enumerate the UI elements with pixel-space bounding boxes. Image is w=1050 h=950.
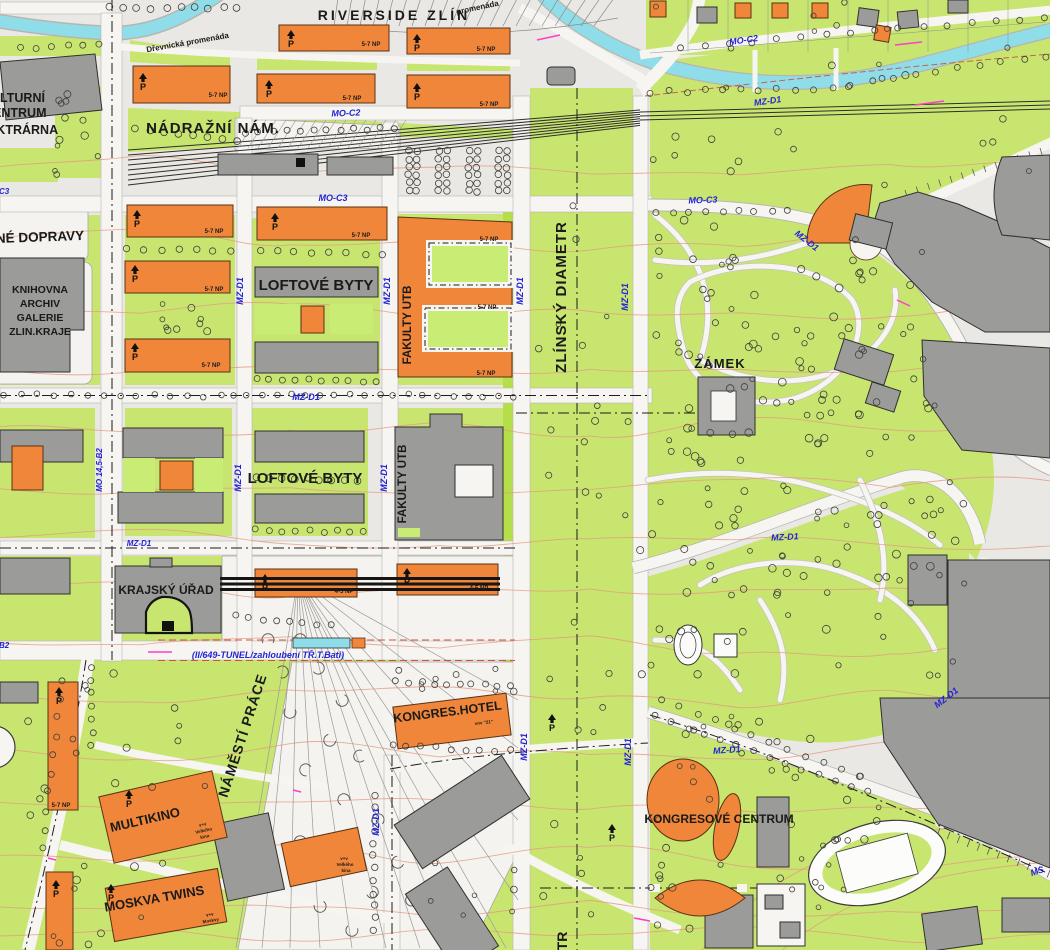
svg-text:P: P bbox=[140, 82, 146, 92]
label-np: 5-7 NP bbox=[477, 371, 496, 377]
park-fountain bbox=[674, 625, 702, 665]
label-knihovna: KNIHOVNA bbox=[12, 284, 68, 296]
label-zamek: ZÁMEK bbox=[694, 356, 745, 371]
label-road-b2-partial: B2 bbox=[0, 641, 10, 650]
building-kongres-gray bbox=[757, 797, 789, 867]
label-road-mz-d1: MZ-D1 bbox=[233, 464, 243, 492]
svg-text:P: P bbox=[414, 92, 420, 102]
building-loftove-1b bbox=[255, 342, 378, 373]
label-fakulty-utb-2: FAKULTY UTB bbox=[397, 445, 409, 524]
svg-text:P: P bbox=[609, 833, 615, 843]
label-archiv: ARCHIV bbox=[20, 298, 60, 310]
boulevard-west-lane bbox=[513, 96, 530, 950]
building-kongres-oval-1 bbox=[647, 759, 719, 841]
label-kino2-note: Velkého bbox=[336, 862, 353, 867]
svg-text:P: P bbox=[288, 39, 294, 49]
label-road-mz-d1: MZ-D1 bbox=[382, 277, 392, 305]
svg-text:P: P bbox=[108, 893, 114, 903]
zoning-map-canvas[interactable]: RIVERSIDE ZLÍNNÁDRAŽNÍ NÁM.KULTURNÍCENTR… bbox=[0, 0, 1050, 950]
building-loftove-2a bbox=[255, 431, 364, 462]
label-road-mz-d1: MZ-D1 bbox=[519, 733, 529, 761]
label-road-mz-d1: MZ-D1 bbox=[379, 464, 389, 492]
label-road-mz-d1: MZ-D1 bbox=[771, 531, 799, 542]
label-zlin-kraje: ZLIN.KRAJE bbox=[9, 326, 71, 338]
label-np: 5-7 NP bbox=[362, 42, 381, 48]
label-road-mz-d1: MZ-D1 bbox=[371, 808, 381, 836]
label-loftove-byty-1: LOFTOVÉ BYTY bbox=[259, 277, 374, 294]
label-np: 5-7 NP bbox=[205, 229, 224, 235]
label-kongresove-centrum: KONGRESOVÉ CENTRUM bbox=[644, 811, 793, 826]
svg-text:P: P bbox=[272, 222, 278, 232]
building-station-2 bbox=[327, 157, 393, 175]
label-road-c3-partial: C3 bbox=[0, 187, 10, 196]
label-road-mo-c2: MO-C2 bbox=[331, 107, 360, 118]
label-kino2-note: kina bbox=[341, 868, 351, 873]
label-nadrazni-nam: NÁDRAŽNÍ NÁM. bbox=[146, 119, 280, 137]
label-diametr-partial: TR bbox=[554, 932, 570, 950]
label-kino2-note: v+v bbox=[340, 856, 348, 861]
svg-text:P: P bbox=[266, 89, 272, 99]
label-road-mz-d1: MZ-D1 bbox=[623, 738, 633, 766]
label-dopravy: NÉ DOPRAVY bbox=[0, 228, 84, 246]
label-np: 5-7 NP bbox=[352, 233, 371, 239]
svg-text:P: P bbox=[134, 219, 140, 229]
label-elektrarna: ELEKTRÁRNA bbox=[0, 122, 58, 137]
label-galerie: GALERIE bbox=[17, 312, 64, 324]
svg-text:P: P bbox=[56, 696, 62, 706]
label-loftove-byty-2: LOFTOVÉ BYTY bbox=[248, 470, 363, 487]
label-fakulty-utb-1: FAKULTY UTB bbox=[402, 286, 414, 365]
label-road-mz-d1: MZ-D1 bbox=[713, 744, 741, 756]
label-np: 4-5 NP bbox=[335, 589, 354, 595]
label-np: 5-7 NP bbox=[205, 287, 224, 293]
label-np: 5-7 NP bbox=[202, 363, 221, 369]
tunnel-portal bbox=[293, 638, 350, 648]
svg-text:P: P bbox=[404, 577, 410, 587]
label-np: 5-7 NP bbox=[209, 93, 228, 99]
label-np: 5-7 NP bbox=[477, 47, 496, 53]
label-zlinsky-diametr: ZLÍNSKÝ DIAMETR bbox=[552, 221, 570, 373]
svg-text:P: P bbox=[53, 889, 59, 899]
label-centrum: CENTRUM bbox=[0, 106, 47, 120]
building-loftove-2b bbox=[255, 494, 364, 523]
label-np: 5-7 NP bbox=[478, 305, 497, 311]
label-road-mz-d1: MZ-D1 bbox=[620, 283, 630, 311]
label-road-mo-14-5-b2: MO 14,5-B2 bbox=[95, 448, 104, 492]
label-road-mz-d1: MZ-D1 bbox=[235, 277, 245, 305]
label-krajsky-urad: KRAJSKÝ ÚŘAD bbox=[118, 582, 214, 597]
label-kulturni: KULTURNÍ bbox=[0, 90, 45, 105]
label-road-mz-d1: MZ-D1 bbox=[515, 277, 525, 305]
label-road-mz-d1: MZ-D1 bbox=[292, 392, 320, 402]
label-road-mz-d1: MZ-D1 bbox=[127, 539, 152, 548]
svg-text:P: P bbox=[126, 799, 132, 809]
label-road-mo-c3: MO-C3 bbox=[319, 193, 348, 203]
label-np: 5-7 NP bbox=[343, 96, 362, 102]
svg-text:P: P bbox=[132, 274, 138, 284]
label-np: 5-7 NP bbox=[480, 102, 499, 108]
label-riverside-zlin: RIVERSIDE ZLÍN bbox=[318, 7, 470, 23]
label-np: 5-7 NP bbox=[52, 803, 71, 809]
svg-text:P: P bbox=[262, 583, 268, 593]
svg-text:P: P bbox=[132, 352, 138, 362]
svg-text:P: P bbox=[549, 723, 555, 733]
label-road-mo-c3: MO-C3 bbox=[688, 194, 717, 205]
label-tunnel: (II/649-TUNEL/zahloubení TŘ.T.Bati) bbox=[192, 649, 344, 660]
label-np: 4-5 NP bbox=[470, 586, 489, 592]
label-np: 5-7 NP bbox=[480, 237, 499, 243]
svg-text:P: P bbox=[414, 43, 420, 53]
